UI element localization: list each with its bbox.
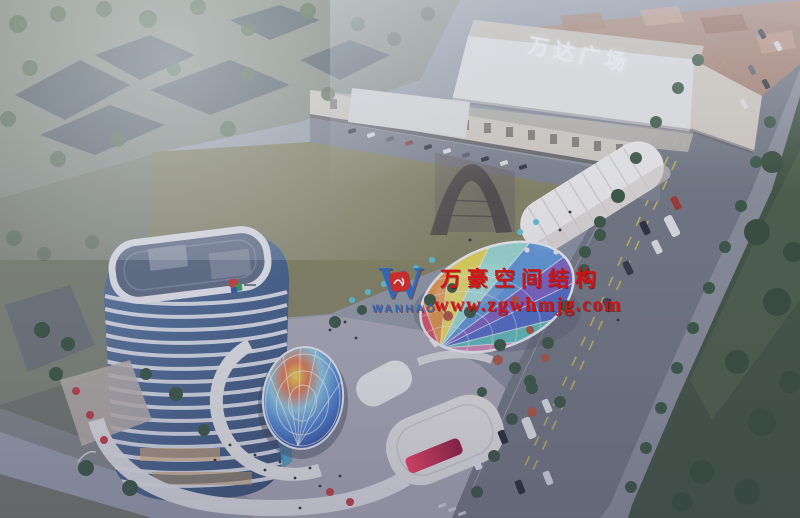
watermark-logo-word: WANHAO: [372, 303, 437, 315]
watermark-company: 万豪空间结构: [439, 267, 602, 291]
watermark-website: www.zgwhmjg.com: [434, 294, 622, 316]
rendering-root: 万达广场: [0, 0, 800, 518]
scene-svg: 万达广场: [0, 0, 800, 518]
